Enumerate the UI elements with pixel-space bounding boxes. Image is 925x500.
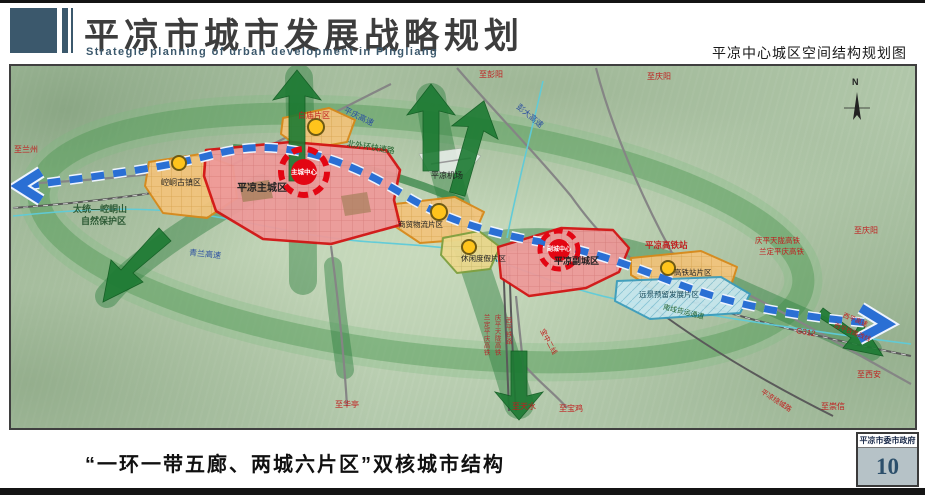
label-zone-leisure: 休闲度假片区 <box>461 255 506 263</box>
label-zone-kongtong: 崆峒古镇区 <box>161 179 201 188</box>
label-zone-baimiao: 白庙片区 <box>298 112 330 121</box>
label-nature-reserve-2: 自然保护区 <box>81 217 126 227</box>
map-caption: “一环一带五廊、两城六片区”双核城市结构 <box>85 448 505 477</box>
label-airport: 平凉机场 <box>431 172 463 181</box>
label-zone-trade: 商贸物流片区 <box>398 221 443 229</box>
label-zone-reserved: 远景预留发展片区 <box>639 291 699 299</box>
label-main-city: 平凉主城区 <box>237 183 287 194</box>
top-rule <box>0 0 925 3</box>
planning-map: 至兰州 至彭阳 至庆阳 至庆阳 至西安 至崇信 至华亭 至天水 至宝鸡 彭大高速… <box>9 64 917 430</box>
label-sub-center: 副城中心 <box>547 247 571 254</box>
map-sheet-title: 平凉中心城区空间结构规划图 <box>712 43 907 63</box>
label-zone-hsr: 高铁站片区 <box>674 269 712 277</box>
city-brown-patch <box>341 192 371 216</box>
label-to-qingyang-east: 至庆阳 <box>854 227 878 236</box>
label-to-lanzhou: 至兰州 <box>14 146 38 155</box>
label-hsr-east-line1: 庆平天陇高铁 <box>755 237 800 245</box>
header-logo-block <box>10 8 57 53</box>
label-hsr-station: 平凉高铁站 <box>645 241 688 250</box>
header-accent-bar-thin <box>71 8 73 53</box>
label-to-chongxin: 至崇信 <box>821 403 845 412</box>
document-subtitle-en: Strategic planning of urban development … <box>86 46 438 58</box>
label-to-baoji: 至宝鸡 <box>559 405 583 414</box>
issuing-org: 平凉市委市政府 <box>858 434 917 448</box>
page-number-box: 平凉市委市政府 10 <box>856 432 919 487</box>
compass-north-label: N <box>852 78 859 88</box>
bottom-rule <box>0 488 925 495</box>
label-rail-xiping: 西平铁路 <box>504 317 511 345</box>
label-to-tianshui: 至天水 <box>512 403 536 412</box>
page-number: 10 <box>858 448 917 485</box>
label-to-pengyang: 至彭阳 <box>479 71 503 80</box>
label-rail-ldpq: 兰定平庆高铁 <box>482 314 489 356</box>
label-to-huating: 至华亭 <box>335 401 359 410</box>
label-nature-reserve-1: 太统—崆峒山 <box>73 205 127 215</box>
header-accent-bar <box>62 8 68 53</box>
label-to-xian: 至西安 <box>857 371 881 380</box>
label-sub-city: 平凉副城区 <box>554 257 599 267</box>
plan-document-page: 平凉市城市发展战略规划 Strategic planning of urban … <box>0 0 925 500</box>
compass-icon <box>844 92 870 120</box>
label-rail-qptl: 庆平天陇高铁 <box>493 314 500 356</box>
label-main-center: 主城中心 <box>291 169 317 176</box>
label-hsr-east-line2: 兰定平庆高铁 <box>759 248 804 256</box>
label-to-qingyang-north: 至庆阳 <box>647 73 671 82</box>
